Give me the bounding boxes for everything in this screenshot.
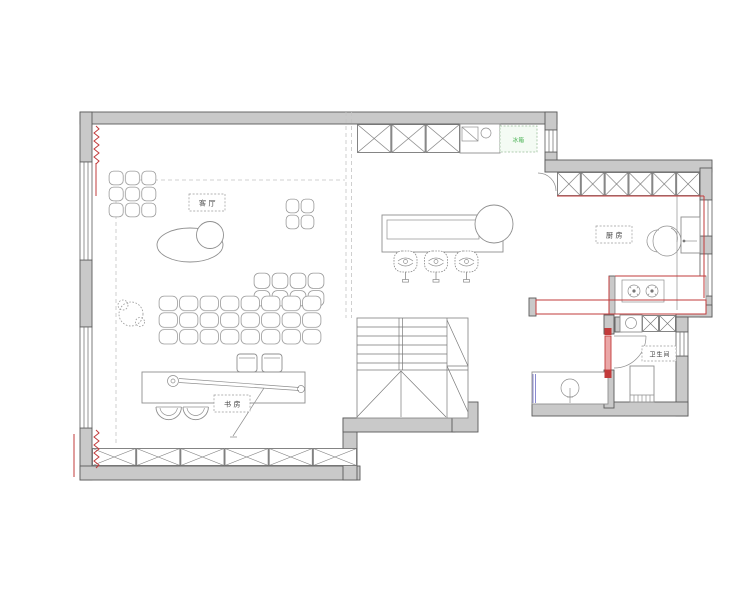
- bathroom-fixtures: [532, 315, 654, 404]
- coffee-table: [197, 222, 224, 249]
- tub-chair-2: [183, 407, 208, 420]
- fridge-label: 冰箱: [512, 136, 524, 144]
- counter-end-cap: [529, 298, 536, 316]
- rounded-wall-corner: [538, 173, 556, 191]
- kitchen-label: 厨房: [606, 231, 625, 240]
- bathroom-door-leaf: [605, 336, 611, 370]
- staircase: [357, 318, 468, 418]
- bar-stool-2: [425, 251, 448, 282]
- bathroom-window: [676, 332, 688, 356]
- bathroom-label: 卫生间: [649, 351, 670, 359]
- top-cabinet-fixtures: 冰箱: [460, 124, 537, 153]
- bar-stool-1: [394, 251, 417, 282]
- bar-stool-3: [455, 251, 478, 282]
- bathroom-cabinet: [642, 315, 676, 332]
- floor-plan-canvas: 冰箱: [0, 0, 740, 592]
- tub-chair-1: [156, 407, 181, 420]
- counter-end-wall: [609, 276, 615, 314]
- right-window-upper: [700, 200, 712, 236]
- left-window-upper: [80, 162, 92, 260]
- left-wall-upper: [80, 112, 92, 162]
- stair-bottom-wall: [343, 418, 455, 432]
- right-wall-1: [700, 168, 712, 200]
- door-swing-arc: [614, 336, 646, 368]
- door-jamb-bottom: [605, 370, 612, 378]
- wall-mark-upper: [94, 126, 99, 164]
- armchair-sofa: [108, 170, 157, 218]
- sofa-section-lower: [158, 295, 322, 345]
- desk-chair-1: [237, 354, 257, 372]
- step-wall-window: [545, 130, 557, 152]
- right-wall-2: [700, 236, 712, 254]
- study-label: 书房: [224, 400, 243, 409]
- top-wall: [80, 112, 557, 124]
- bottom-wall-left: [80, 466, 360, 480]
- kitchen-chair: [647, 226, 681, 256]
- living-room-label: 客厅: [199, 199, 218, 208]
- sink-cabinet: [460, 124, 500, 153]
- door-jamb-top: [605, 328, 612, 335]
- round-table: [475, 205, 513, 243]
- study-bookshelf-run: [92, 448, 357, 466]
- bar-area: [382, 205, 513, 282]
- step-wall-upper: [545, 112, 557, 130]
- plant: [118, 300, 145, 327]
- left-window-lower: [80, 327, 92, 428]
- top-cabinet-run: [357, 124, 460, 153]
- bathroom-right-wall-upper: [676, 317, 688, 332]
- kitchen-upper-cabinet-run: [557, 172, 700, 196]
- floor-plan-drawing: 冰箱: [0, 0, 740, 592]
- ottoman: [285, 198, 315, 230]
- left-wall-mid: [80, 260, 92, 327]
- desk-chair-2: [262, 354, 282, 372]
- kitchen-appliance: [681, 217, 700, 253]
- stove-counter: [615, 276, 706, 314]
- top-wall-right-wing: [545, 160, 712, 172]
